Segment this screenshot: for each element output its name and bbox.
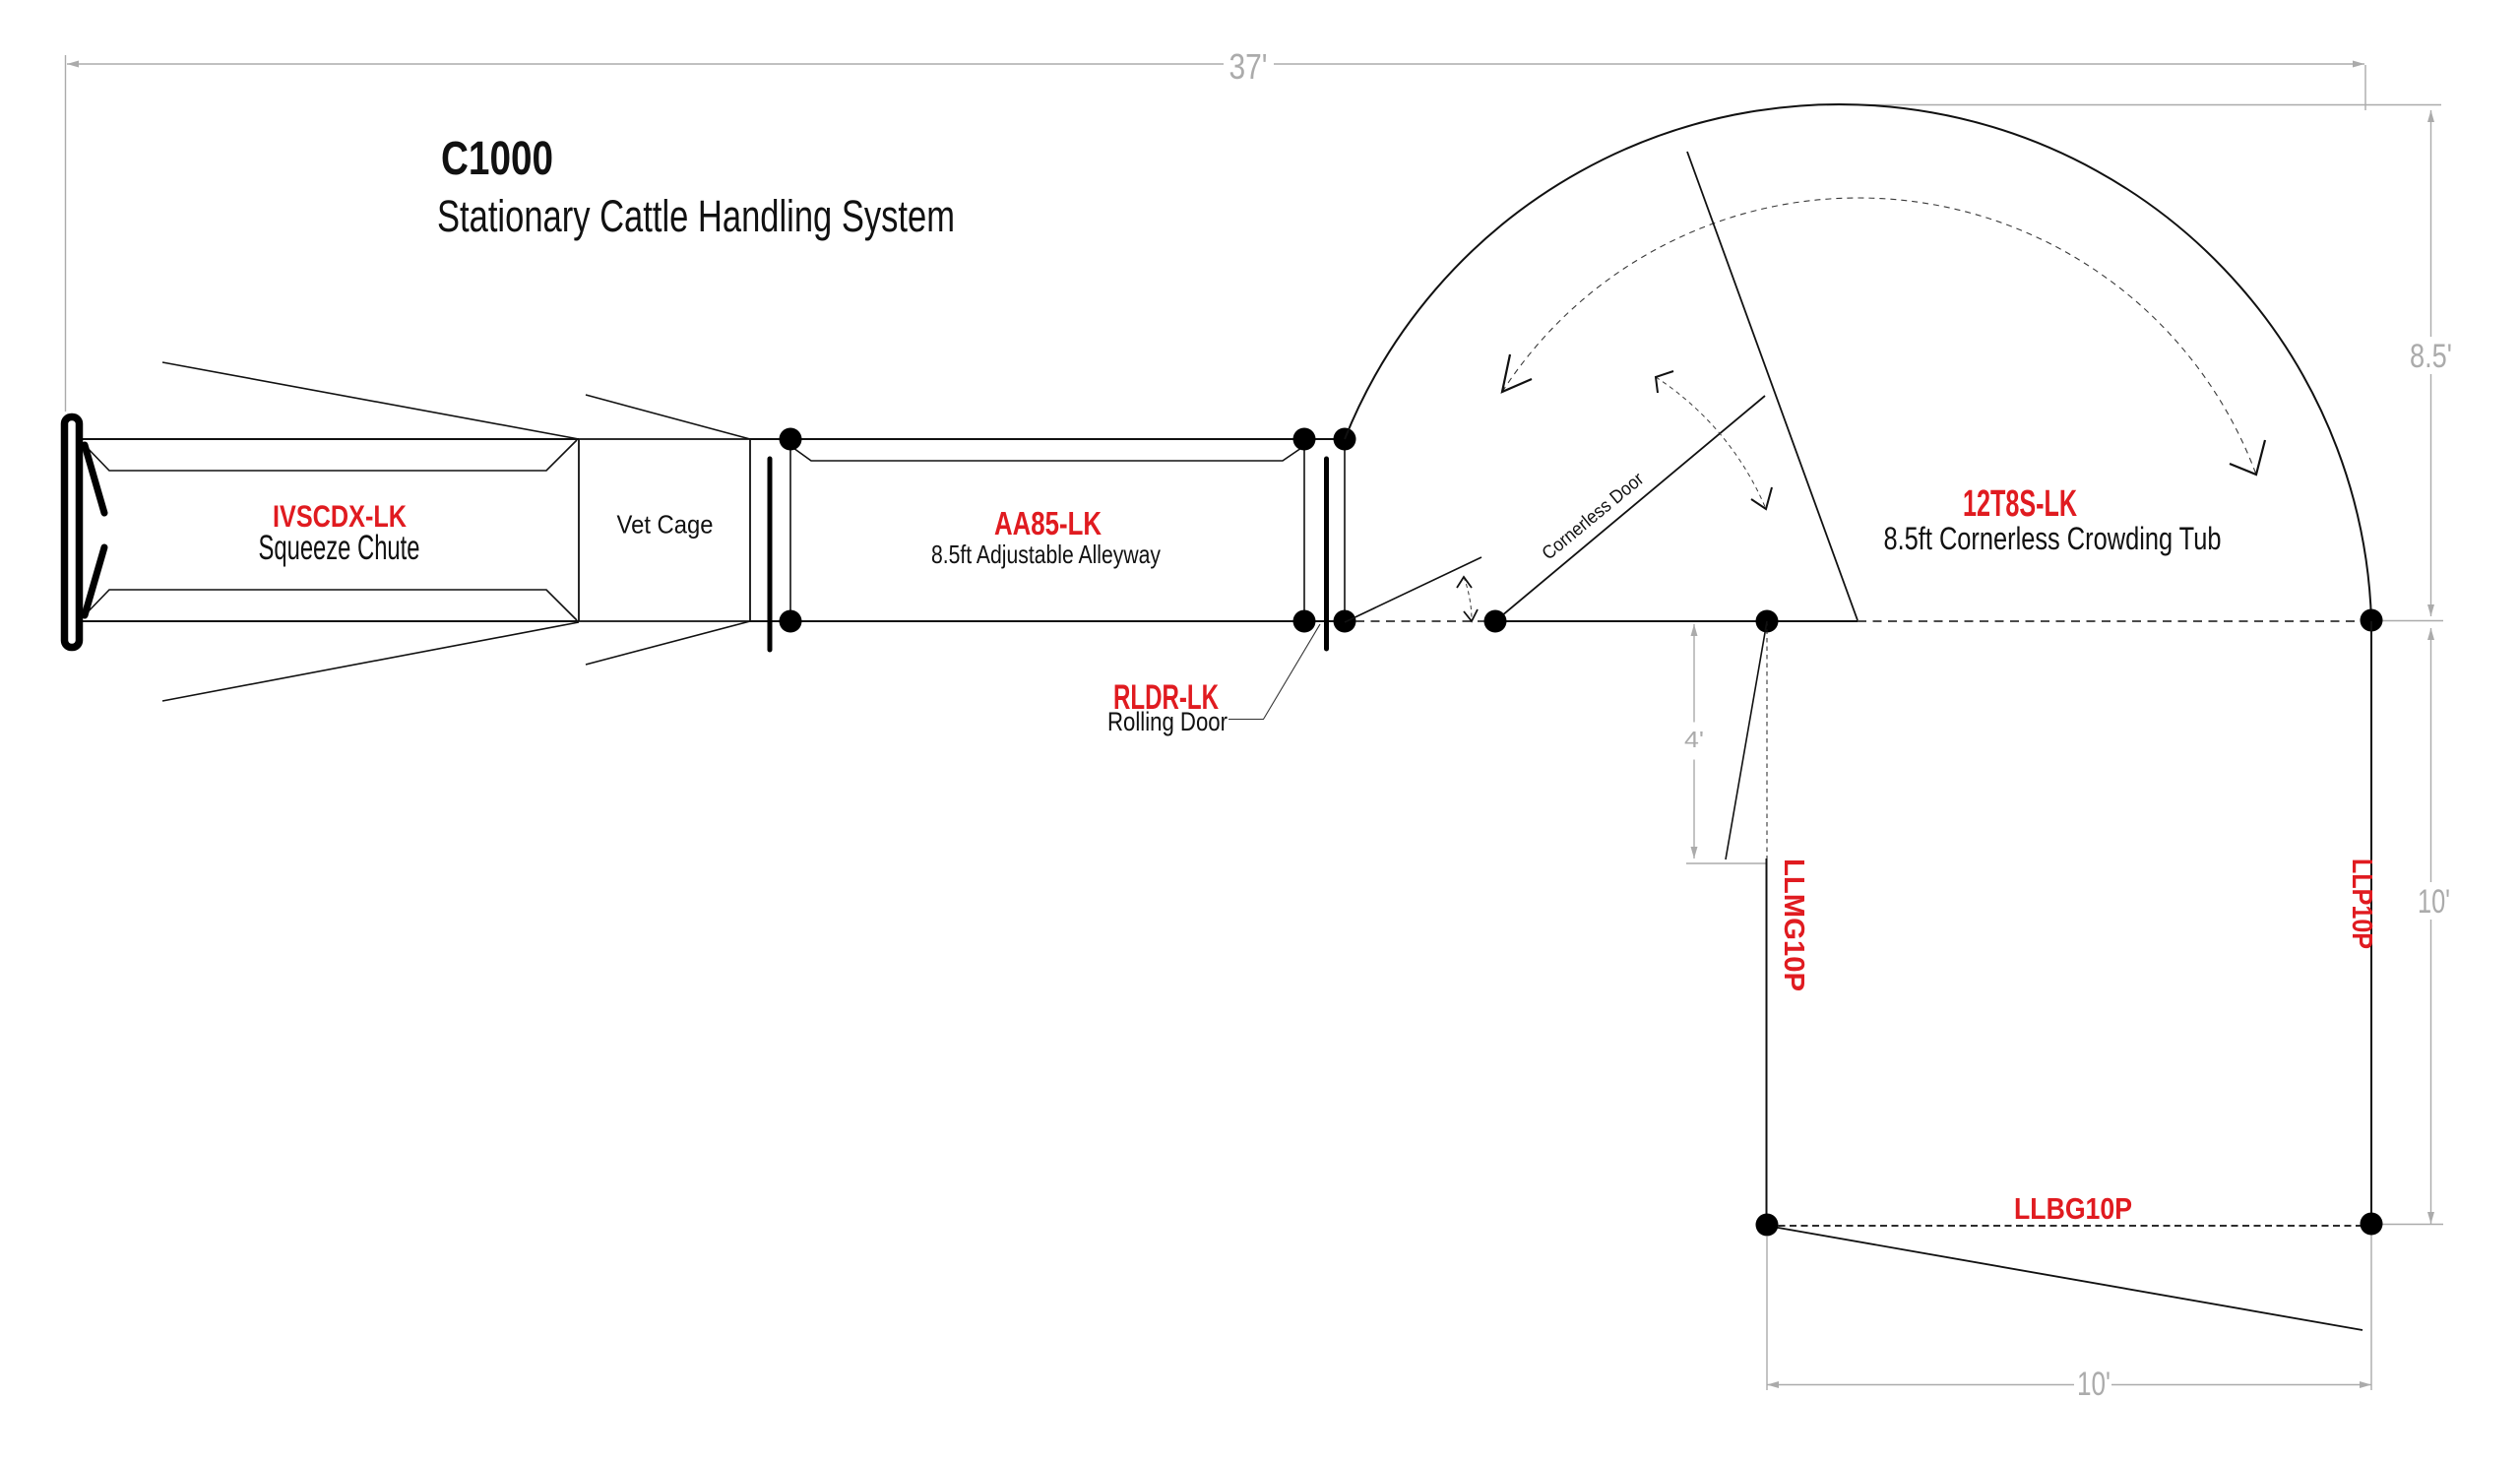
svg-text:C1000: C1000 bbox=[441, 133, 553, 185]
svg-text:AA85-LK: AA85-LK bbox=[994, 505, 1102, 541]
svg-text:8.5': 8.5' bbox=[2410, 338, 2452, 375]
svg-text:8.5ft Cornerless Crowding Tub: 8.5ft Cornerless Crowding Tub bbox=[1884, 521, 2222, 556]
svg-text:Rolling Door: Rolling Door bbox=[1107, 707, 1228, 736]
svg-text:Stationary Cattle Handling Sys: Stationary Cattle Handling System bbox=[437, 191, 955, 241]
svg-text:LLMG10P: LLMG10P bbox=[1778, 859, 1809, 991]
svg-text:37': 37' bbox=[1229, 46, 1268, 87]
svg-text:12T8S-LK: 12T8S-LK bbox=[1963, 483, 2077, 525]
svg-text:Vet Cage: Vet Cage bbox=[617, 510, 714, 540]
svg-text:LLBG10P: LLBG10P bbox=[2014, 1191, 2132, 1226]
svg-text:10': 10' bbox=[2418, 883, 2450, 921]
svg-text:10': 10' bbox=[2077, 1366, 2110, 1403]
svg-text:4': 4' bbox=[1684, 727, 1704, 752]
svg-text:LLP10P: LLP10P bbox=[2346, 859, 2377, 949]
svg-text:8.5ft Adjustable Alleyway: 8.5ft Adjustable Alleyway bbox=[931, 540, 1161, 569]
svg-text:Squeeze Chute: Squeeze Chute bbox=[259, 529, 420, 567]
